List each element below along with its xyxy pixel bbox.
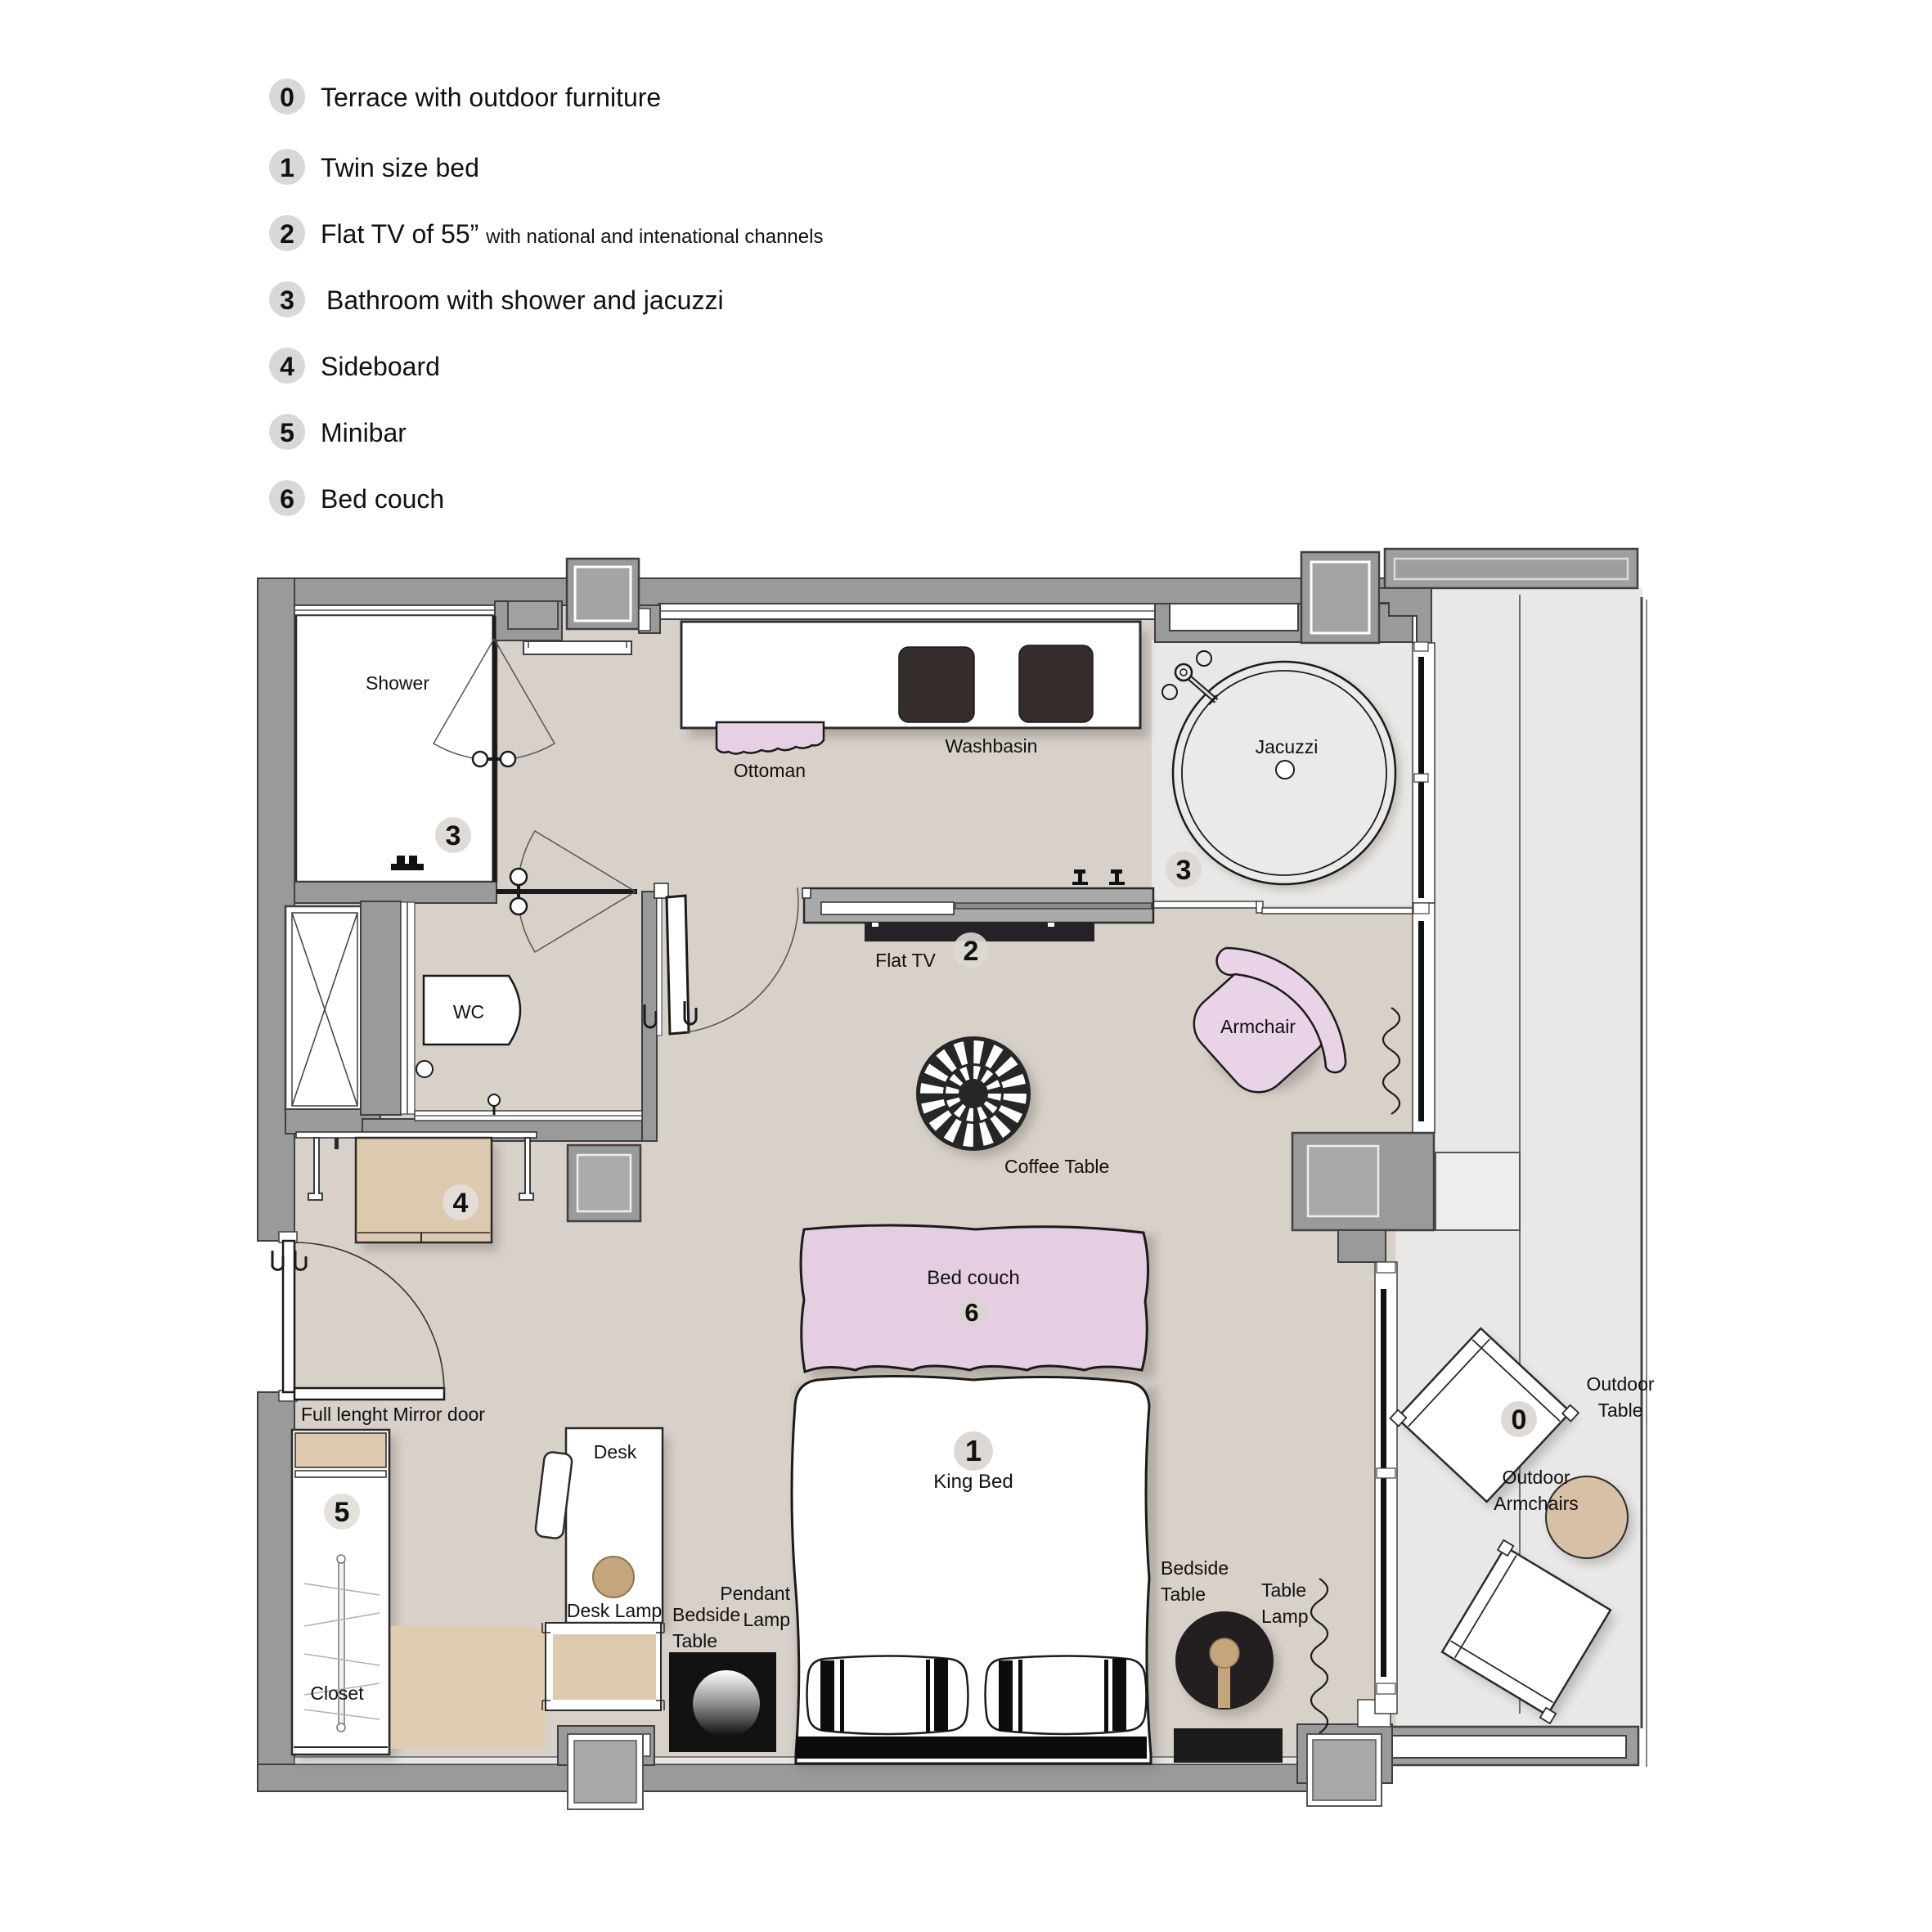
- svg-text:Lamp: Lamp: [743, 1609, 790, 1630]
- svg-text:6: 6: [964, 1298, 978, 1327]
- svg-text:Lamp: Lamp: [1261, 1606, 1309, 1627]
- svg-text:6: 6: [280, 484, 294, 514]
- svg-text:Desk: Desk: [594, 1441, 637, 1462]
- svg-text:3: 3: [446, 820, 461, 851]
- svg-text:0: 0: [280, 83, 294, 112]
- svg-text:Table: Table: [1161, 1584, 1206, 1605]
- svg-text:Coffee Table: Coffee Table: [1004, 1156, 1109, 1177]
- svg-text:2: 2: [964, 936, 979, 967]
- svg-text:WC: WC: [453, 1001, 484, 1022]
- svg-text:0: 0: [1512, 1404, 1527, 1436]
- svg-text:3: 3: [280, 285, 294, 315]
- svg-text:Armchairs: Armchairs: [1494, 1493, 1579, 1514]
- svg-text:Twin size bed: Twin size bed: [321, 153, 479, 182]
- svg-text:Ottoman: Ottoman: [734, 760, 806, 781]
- svg-text:Flat TV: Flat TV: [875, 950, 936, 971]
- svg-text:1: 1: [965, 1434, 982, 1467]
- svg-text:Desk Lamp: Desk Lamp: [567, 1600, 662, 1621]
- svg-text:5: 5: [335, 1497, 350, 1528]
- svg-text:Bed couch: Bed couch: [321, 484, 444, 514]
- svg-text:Bedside: Bedside: [672, 1604, 740, 1625]
- svg-text:4: 4: [280, 352, 294, 381]
- svg-text:Shower: Shower: [366, 672, 429, 694]
- svg-text:4: 4: [453, 1188, 469, 1219]
- svg-text:Sideboard: Sideboard: [321, 352, 440, 381]
- svg-text:Bed couch: Bed couch: [927, 1267, 1019, 1289]
- svg-text:3: 3: [1176, 855, 1192, 886]
- svg-text:Terrace with outdoor furniture: Terrace with outdoor furniture: [321, 83, 661, 112]
- svg-text:Jacuzzi: Jacuzzi: [1256, 736, 1319, 757]
- svg-text:Table: Table: [672, 1630, 717, 1651]
- svg-text:Washbasin: Washbasin: [946, 735, 1038, 757]
- svg-text:Outdoor: Outdoor: [1586, 1373, 1654, 1395]
- svg-text:2: 2: [280, 219, 294, 249]
- svg-text:Closet: Closet: [310, 1683, 364, 1704]
- svg-text:5: 5: [280, 418, 294, 447]
- svg-text:1: 1: [280, 153, 294, 182]
- svg-text:Bedside: Bedside: [1161, 1557, 1229, 1579]
- svg-text:Table: Table: [1598, 1400, 1643, 1421]
- svg-text:Outdoor: Outdoor: [1502, 1467, 1570, 1488]
- svg-text:Table: Table: [1261, 1579, 1306, 1601]
- svg-text:Minibar: Minibar: [321, 418, 407, 447]
- svg-text:Full lenght Mirror door: Full lenght Mirror door: [301, 1404, 485, 1425]
- svg-text:King Bed: King Bed: [933, 1471, 1013, 1493]
- svg-text:Armchair: Armchair: [1220, 1016, 1296, 1037]
- svg-text:Pendant: Pendant: [720, 1583, 790, 1604]
- svg-text:Bathroom with shower and jacuz: Bathroom with shower and jacuzzi: [326, 285, 724, 315]
